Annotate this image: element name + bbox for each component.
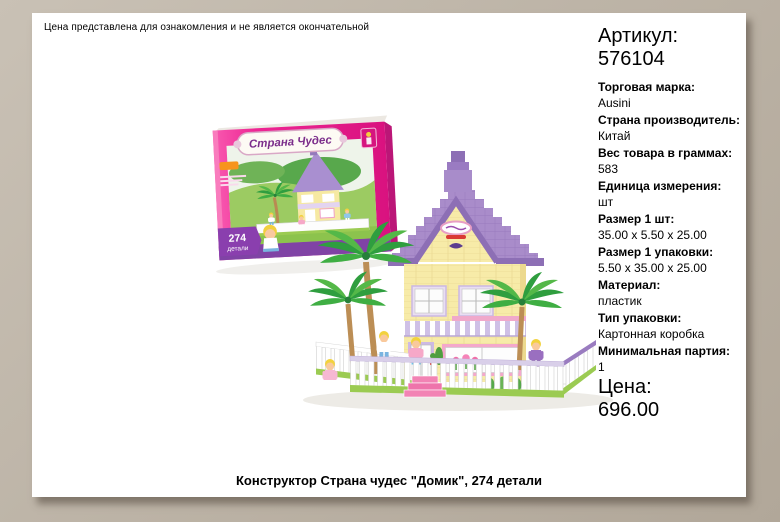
info-column: Артикул: 576104 Торговая марка: Ausini С… [598, 25, 763, 422]
pieces-label-text: детали [227, 245, 249, 253]
attr-row-material: Материал: пластик [598, 277, 763, 309]
attr-value: 5.50 x 35.00 x 25.00 [598, 260, 763, 276]
attr-row-min-lot: Минимальная партия: 1 [598, 343, 763, 375]
attr-value: Картонная коробка [598, 326, 763, 342]
article-label: Артикул: [598, 25, 763, 48]
article-value: 576104 [598, 48, 763, 71]
chimney [451, 151, 465, 163]
disclaimer-text: Цена представлена для ознакомления и не … [44, 22, 369, 33]
fence-right [562, 340, 596, 396]
product-photo: 274 детали Страна Чудес [200, 103, 640, 425]
attr-value: пластик [598, 293, 763, 309]
attr-row-unit: Единица измерения: шт [598, 178, 763, 210]
attr-label: Вес товара в граммах: [598, 145, 763, 161]
attr-label: Тип упаковки: [598, 310, 763, 326]
attr-value: шт [598, 194, 763, 210]
price-block: Цена: 696.00 [598, 376, 763, 422]
page-title: Конструктор Страна чудес "Домик", 274 де… [32, 473, 746, 488]
attr-value: Китай [598, 128, 763, 144]
attr-value: 35.00 x 5.50 x 25.00 [598, 227, 763, 243]
attr-label: Единица измерения: [598, 178, 763, 194]
attr-value: 583 [598, 161, 763, 177]
attr-value: 1 [598, 359, 763, 375]
attr-label: Материал: [598, 277, 763, 293]
attr-row-country: Страна производитель: Китай [598, 112, 763, 144]
attr-row-pack-size: Размер 1 упаковки: 5.50 x 35.00 x 25.00 [598, 244, 763, 276]
attr-value: Ausini [598, 95, 763, 111]
attr-row-brand: Торговая марка: Ausini [598, 79, 763, 111]
window-upper-left [412, 286, 446, 316]
attr-row-weight: Вес товара в граммах: 583 [598, 145, 763, 177]
attr-label: Страна производитель: [598, 112, 763, 128]
awning [404, 321, 526, 336]
product-sheet-page: Цена представлена для ознакомления и не … [32, 13, 746, 497]
desktop-frame: { "page": { "disclaimer": "Цена представ… [0, 0, 780, 522]
attr-label: Размер 1 шт: [598, 211, 763, 227]
attr-label: Торговая марка: [598, 79, 763, 95]
attr-label: Размер 1 упаковки: [598, 244, 763, 260]
price-value: 696.00 [598, 399, 763, 422]
pieces-count-text: 274 [228, 232, 246, 245]
attr-label: Минимальная партия: [598, 343, 763, 359]
attr-row-item-size: Размер 1 шт: 35.00 x 5.50 x 25.00 [598, 211, 763, 243]
attr-row-pack-type: Тип упаковки: Картонная коробка [598, 310, 763, 342]
article-block: Артикул: 576104 [598, 25, 763, 71]
fence-front [350, 356, 564, 398]
price-label: Цена: [598, 376, 763, 399]
palm-tree [308, 272, 388, 306]
